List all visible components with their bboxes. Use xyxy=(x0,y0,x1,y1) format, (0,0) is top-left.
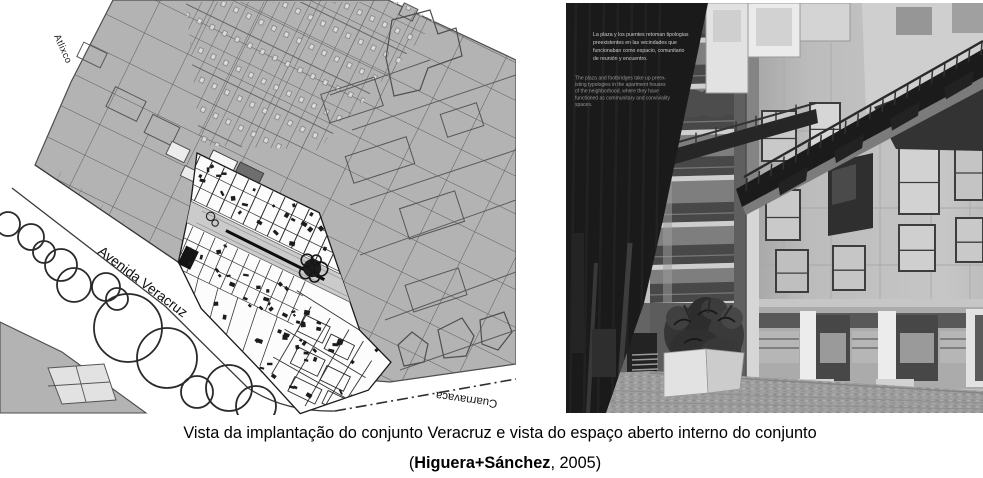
svg-text:functioned as communitary and: functioned as communitary and conviviali… xyxy=(575,95,671,101)
svg-text:Cuarnavaca: Cuarnavaca xyxy=(434,389,498,410)
svg-text:The plaza and footbridges take: The plaza and footbridges take up preex- xyxy=(575,76,667,82)
svg-text:preexistentes en las vecindade: preexistentes en las vecindades que xyxy=(593,40,677,46)
svg-text:de reunión y encuentro.: de reunión y encuentro. xyxy=(593,56,648,62)
svg-text:La plaza y los puentes retoman: La plaza y los puentes retoman tipologia… xyxy=(593,32,689,38)
svg-text:isting typologies in the apart: isting typologies in the apartment house… xyxy=(575,82,666,88)
svg-text:Atlixco: Atlixco xyxy=(51,33,74,66)
svg-text:funcionaban como espacio, comu: funcionaban como espacio, comunitario xyxy=(593,48,685,54)
svg-text:of the neighborhood, where the: of the neighborhood, where they have xyxy=(575,89,659,95)
svg-text:spaces.: spaces. xyxy=(575,102,592,108)
